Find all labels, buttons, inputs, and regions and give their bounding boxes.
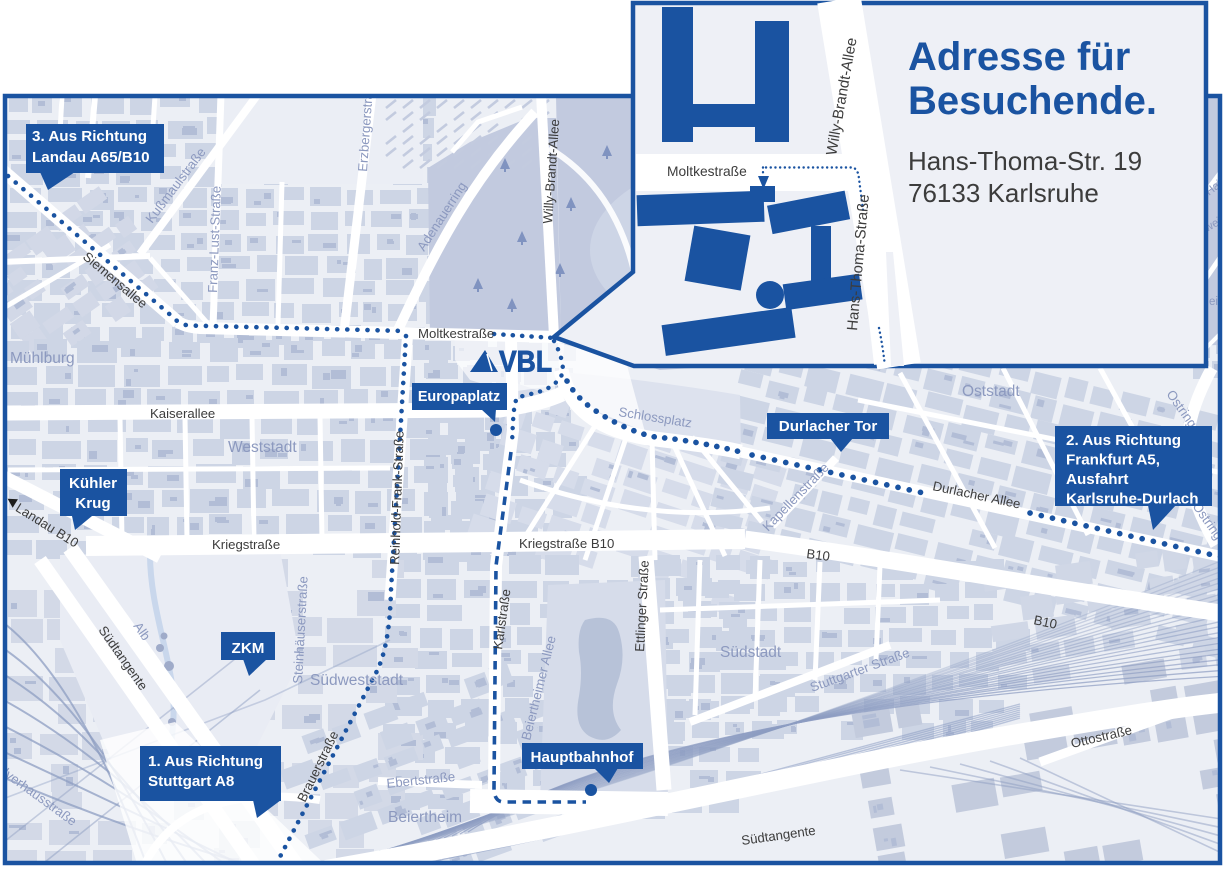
- svg-text:Adresse für: Adresse für: [908, 35, 1130, 79]
- svg-text:Kriegstraße B10: Kriegstraße B10: [519, 536, 614, 551]
- svg-text:VBL: VBL: [499, 346, 552, 379]
- svg-text:Europaplatz: Europaplatz: [418, 389, 500, 405]
- svg-text:Hauptbahnhof: Hauptbahnhof: [531, 749, 635, 766]
- svg-text:Ausfahrt: Ausfahrt: [1066, 471, 1128, 488]
- svg-text:Durlacher Tor: Durlacher Tor: [779, 418, 878, 435]
- svg-text:1. Aus Richtung: 1. Aus Richtung: [148, 753, 263, 770]
- svg-text:Stuttgart A8: Stuttgart A8: [148, 773, 234, 790]
- svg-text:Krug: Krug: [75, 495, 110, 512]
- svg-text:76133 Karlsruhe: 76133 Karlsruhe: [908, 178, 1099, 208]
- svg-text:3. Aus Richtung: 3. Aus Richtung: [32, 128, 147, 145]
- svg-text:Karlsruhe-Durlach: Karlsruhe-Durlach: [1066, 491, 1199, 508]
- svg-text:Kühler: Kühler: [69, 475, 117, 492]
- svg-text:Frankfurt A5,: Frankfurt A5,: [1066, 452, 1160, 469]
- svg-text:Südstadt: Südstadt: [720, 644, 782, 661]
- svg-text:Moltkestraße: Moltkestraße: [667, 164, 747, 179]
- svg-text:Kaiserallee: Kaiserallee: [150, 406, 215, 421]
- svg-text:Mühlburg: Mühlburg: [10, 350, 75, 367]
- svg-text:Moltkestraße: Moltkestraße: [418, 326, 494, 341]
- svg-text:Weststadt: Weststadt: [228, 439, 297, 456]
- svg-text:Besuchende.: Besuchende.: [908, 79, 1157, 123]
- svg-text:B10: B10: [806, 546, 831, 564]
- svg-text:Hans-Thoma-Str. 19: Hans-Thoma-Str. 19: [908, 146, 1142, 176]
- svg-text:Kriegstraße: Kriegstraße: [212, 537, 280, 552]
- svg-text:Beiertheim: Beiertheim: [388, 809, 462, 826]
- svg-text:2. Aus Richtung: 2. Aus Richtung: [1066, 432, 1181, 449]
- svg-text:ZKM: ZKM: [232, 640, 265, 657]
- svg-text:Oststadt: Oststadt: [962, 383, 1020, 400]
- svg-text:Landau A65/B10: Landau A65/B10: [32, 149, 150, 166]
- svg-text:Südweststadt: Südweststadt: [310, 672, 404, 689]
